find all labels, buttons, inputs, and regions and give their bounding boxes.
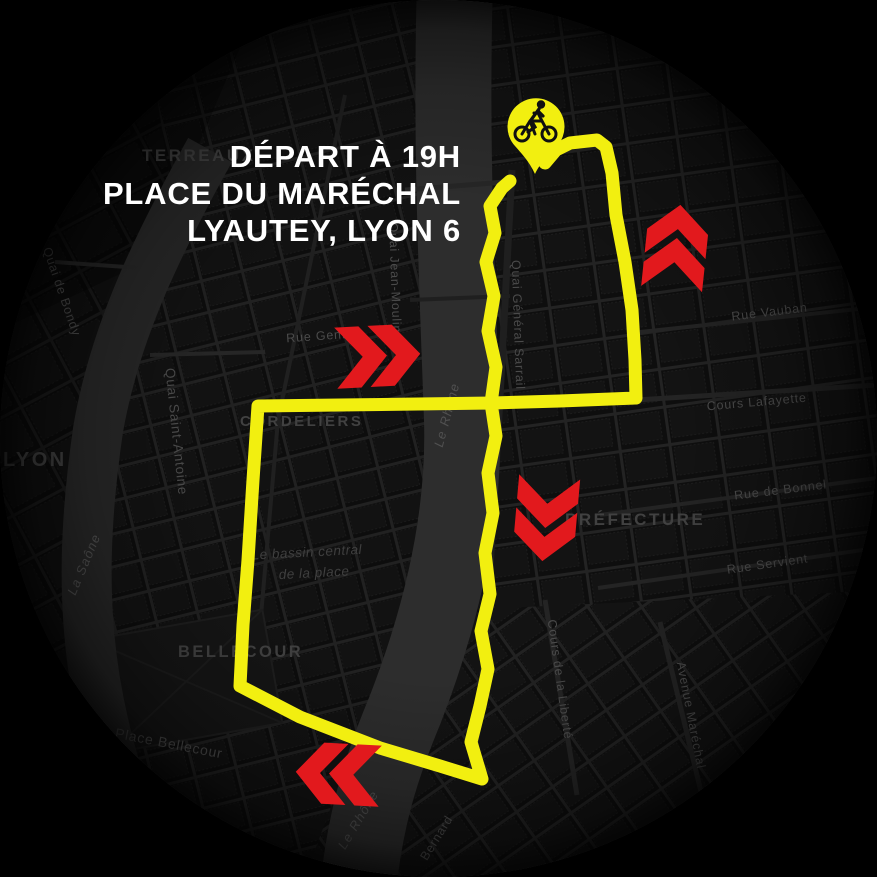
title-line-1: DÉPART À 19H xyxy=(0,138,461,175)
rider-head xyxy=(537,100,545,108)
vignette-overlay xyxy=(0,0,877,877)
map-canvas: La Saône Le Rhône Le Rhône Le bassin cen… xyxy=(0,0,877,877)
title-line-2: PLACE DU MARÉCHAL xyxy=(0,175,461,212)
route-map-card: La Saône Le Rhône Le Rhône Le bassin cen… xyxy=(0,0,877,877)
departure-title: DÉPART À 19H PLACE DU MARÉCHAL LYAUTEY, … xyxy=(0,138,461,249)
title-line-3: LYAUTEY, LYON 6 xyxy=(0,212,461,249)
